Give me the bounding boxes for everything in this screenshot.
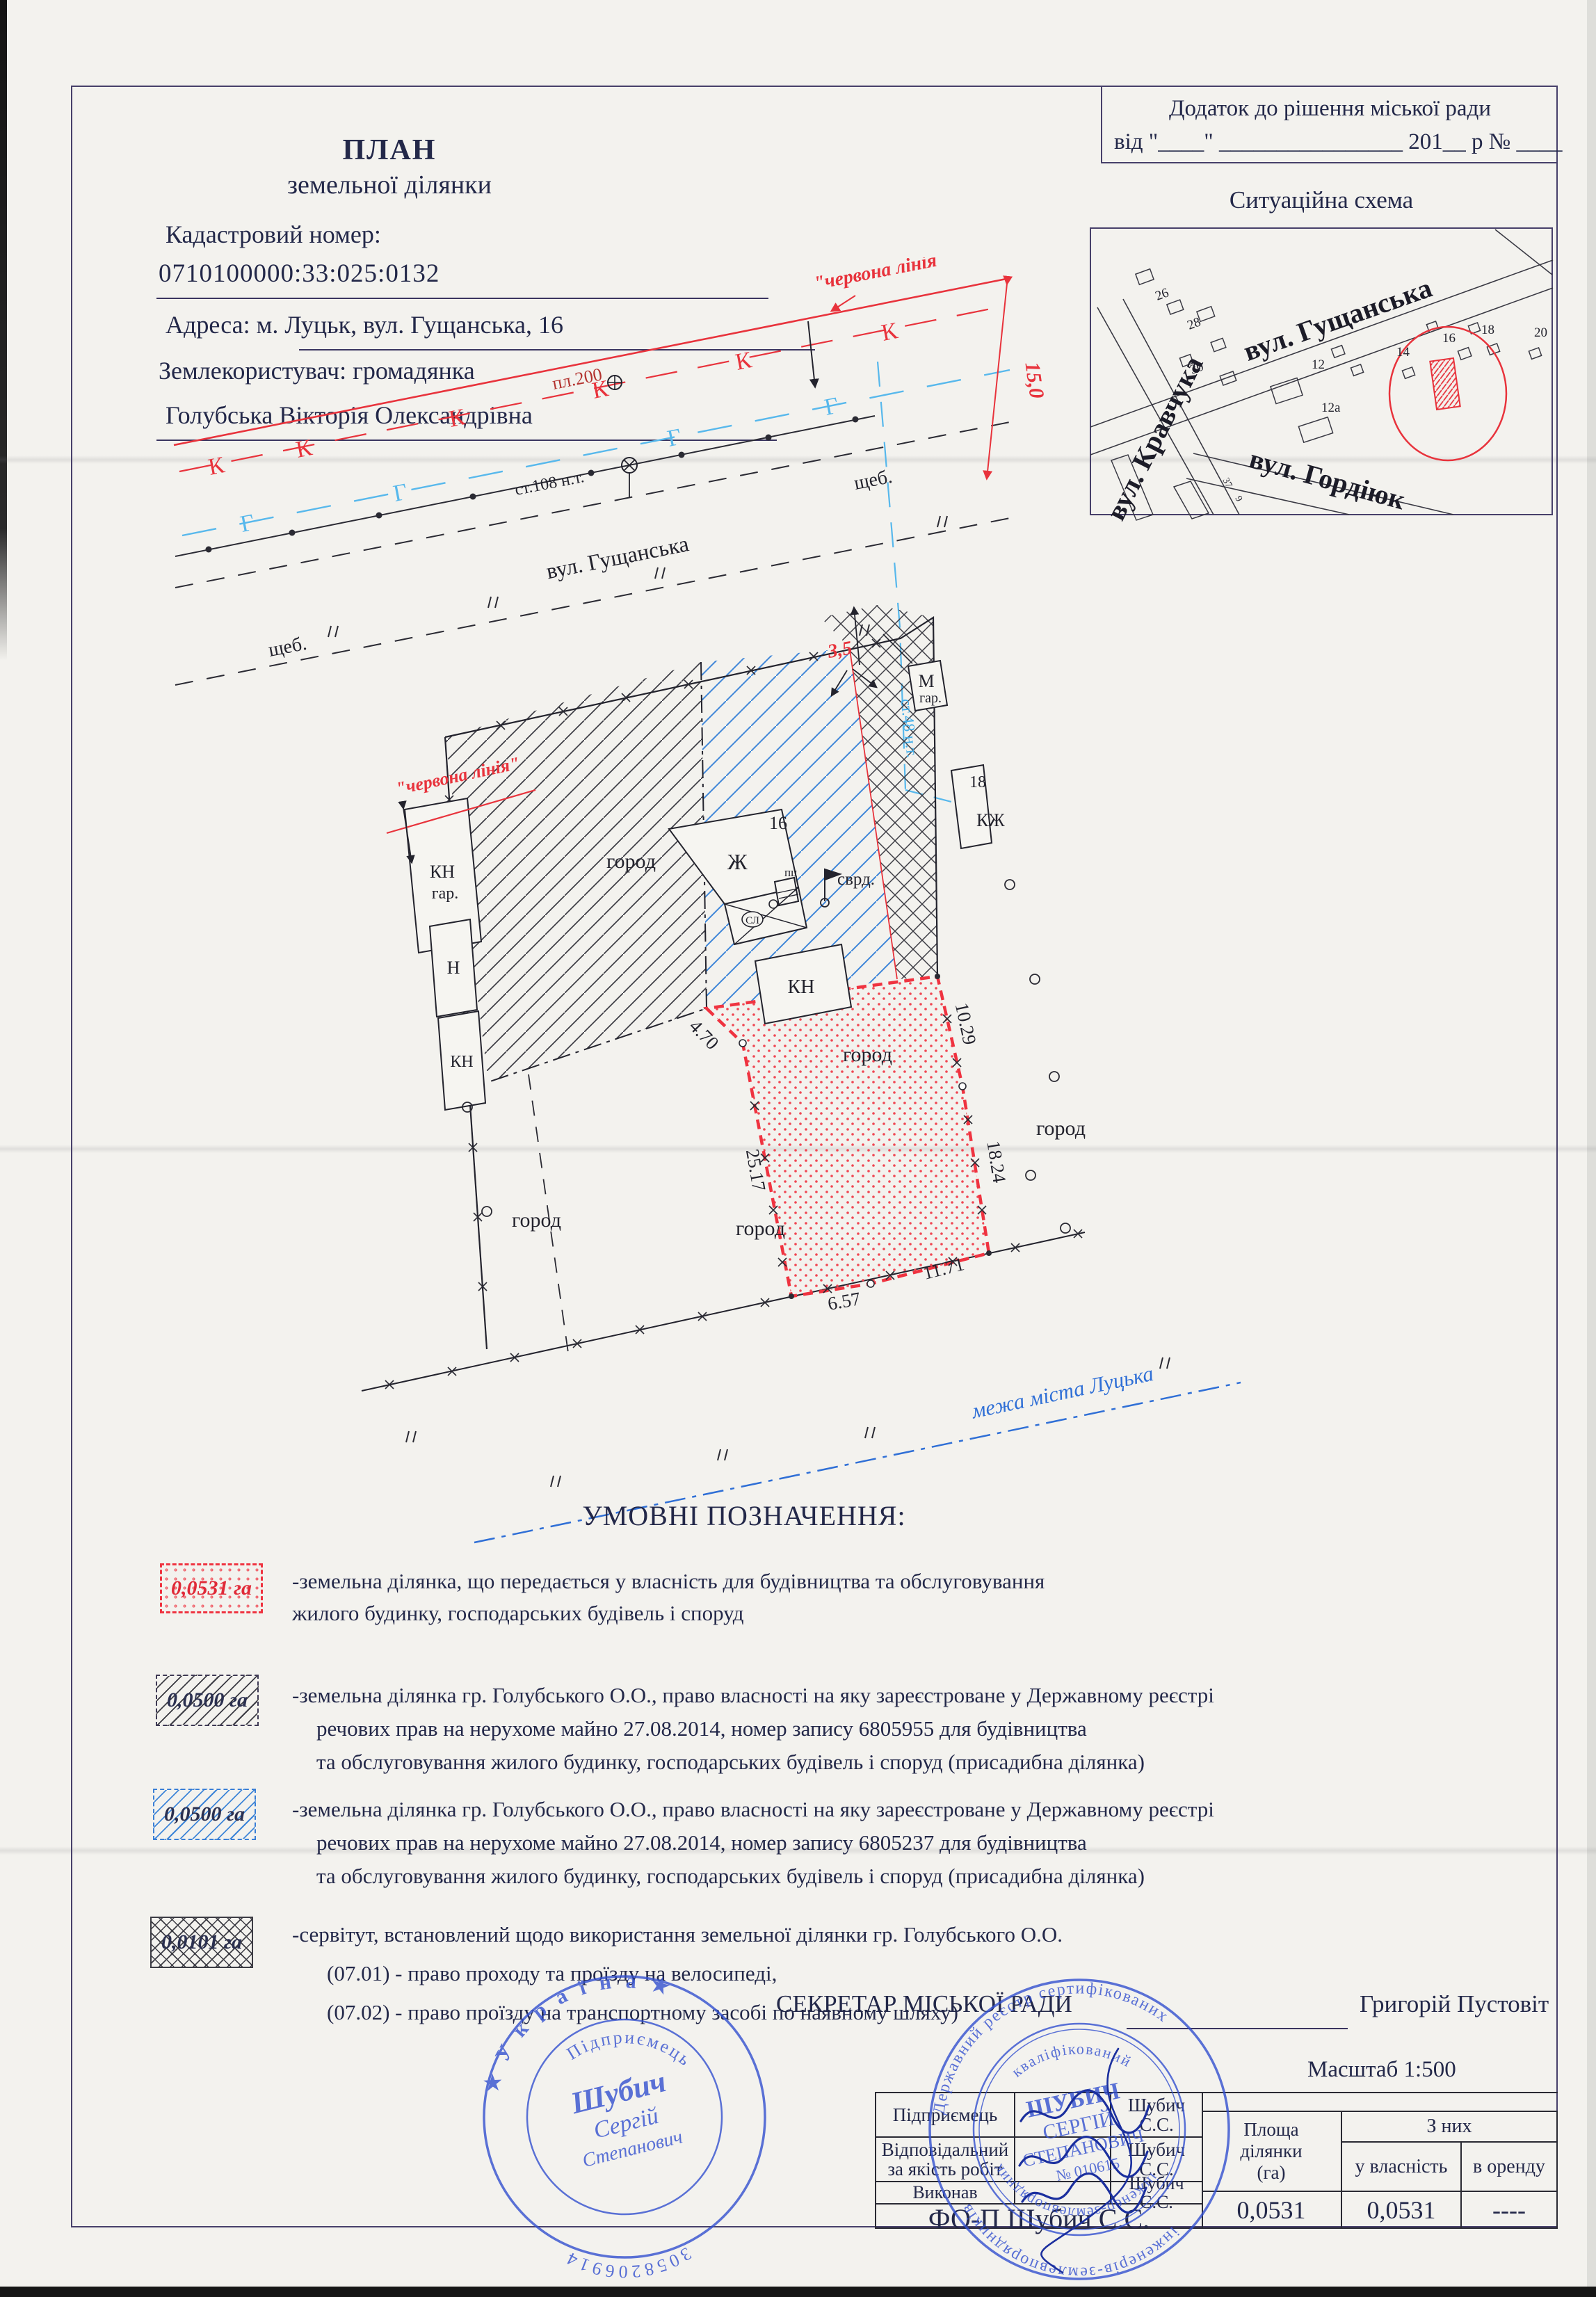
legend-area-3: 0,0101 га bbox=[161, 1931, 242, 1954]
legend-text: -земельна ділянка гр. Голубського О.О., … bbox=[292, 1683, 1214, 1708]
dim-4-70: 4.70 bbox=[685, 1015, 723, 1054]
red-line bbox=[174, 278, 1010, 445]
values-row: 0,0531 ---- bbox=[1342, 2192, 1556, 2227]
svg-text:18: 18 bbox=[1481, 323, 1494, 337]
leader-arrow bbox=[808, 321, 815, 387]
doc-subtitle: земельної ділянки bbox=[209, 170, 570, 200]
svg-text:КН: КН bbox=[450, 1053, 473, 1071]
svg-text:16: 16 bbox=[1442, 331, 1456, 346]
svg-text:14: 14 bbox=[1396, 345, 1410, 360]
round-stamp-entrepreneur: ★ У к р а ї н а ★ Підприємець 3058206914… bbox=[479, 1969, 765, 2282]
svg-text:Г: Г bbox=[238, 510, 256, 538]
svg-text:Г: Г bbox=[391, 479, 409, 507]
scheme-title: Ситуаційна схема bbox=[1106, 186, 1537, 214]
scale-label: Масштаб 1:500 bbox=[1307, 2057, 1456, 2083]
rent-value: ---- bbox=[1462, 2192, 1556, 2227]
legend-area-0: 0,0531 га bbox=[171, 1577, 252, 1600]
svg-text:Г: Г bbox=[665, 424, 683, 452]
svg-text:город: город bbox=[1036, 1117, 1086, 1140]
svg-text:К: К bbox=[879, 318, 900, 346]
red-line-label: "червона лінія" bbox=[812, 257, 949, 294]
svg-text:12: 12 bbox=[1312, 357, 1325, 372]
legend-swatch-transferred: 0,0531 га bbox=[160, 1563, 263, 1613]
round-stamp-engineer: Державний реєстр сертифікованих інженері… bbox=[930, 1979, 1229, 2282]
building-pc bbox=[775, 878, 798, 905]
dim-18-24: 18.24 bbox=[983, 1139, 1010, 1184]
borehole-label: сврд. bbox=[837, 870, 875, 889]
scanned-land-plan-document: ПЛАН земельної ділянки Кадастровий номер… bbox=[0, 0, 1596, 2297]
sewer-K-marks: К К К К К К bbox=[206, 318, 900, 481]
scan-edge-bottom bbox=[0, 2287, 1596, 2297]
svg-text:кваліфікований: кваліфікований bbox=[1008, 2040, 1135, 2080]
of-them-columns: З них у власність в оренду 0,0531 ---- bbox=[1342, 2112, 1556, 2227]
svg-text:пц: пц bbox=[784, 866, 797, 879]
legend-text: та обслуговування жилого будинку, господ… bbox=[316, 1864, 1145, 1889]
legend-text: та обслуговування жилого будинку, господ… bbox=[316, 1750, 1145, 1775]
svg-text:18: 18 bbox=[969, 773, 986, 791]
manhole-icon bbox=[608, 376, 622, 389]
cadastral-label: Кадастровий номер: bbox=[166, 220, 381, 249]
svg-text:КН: КН bbox=[430, 862, 455, 882]
dim-15-label: 15,0 bbox=[1020, 360, 1048, 400]
dim-10-29: 10.29 bbox=[951, 1001, 981, 1047]
svg-text:Ж: Ж bbox=[727, 849, 748, 874]
transferred-parcel-0-0531 bbox=[707, 976, 989, 1296]
svg-text:К: К bbox=[293, 435, 314, 463]
legend-area-2: 0,0500 га bbox=[164, 1803, 245, 1826]
svg-text:город: город bbox=[843, 1043, 892, 1066]
svg-text:гар.: гар. bbox=[919, 691, 942, 706]
svg-text:КН: КН bbox=[788, 976, 815, 998]
doc-title: ПЛАН bbox=[209, 134, 570, 167]
svg-text:К: К bbox=[206, 452, 227, 481]
dim-35-label: 3,5 bbox=[825, 637, 854, 663]
svg-text:12а: 12а bbox=[1321, 401, 1341, 415]
legend-text: -сервітут, встановлений щодо використанн… bbox=[292, 1922, 1063, 1947]
group-header: З них bbox=[1342, 2112, 1556, 2143]
svg-text:гар.: гар. bbox=[432, 885, 459, 903]
secretary-name: Григорій Пустовіт bbox=[1360, 1990, 1549, 2018]
svg-text:К: К bbox=[446, 404, 467, 433]
legend-title: УМОВНІ ПОЗНАЧЕННЯ: bbox=[431, 1499, 1057, 1532]
legend-text: жилого будинку, господарських будівель і… bbox=[292, 1601, 744, 1626]
legend-text: речових прав на нерухоме майно 27.08.201… bbox=[316, 1716, 1087, 1741]
power-label: ст.108 н.т. bbox=[513, 468, 586, 499]
gravel-label: щеб. bbox=[266, 633, 308, 661]
svg-text:М: М bbox=[918, 671, 934, 691]
city-border-label: межа міста Луцька bbox=[969, 1361, 1156, 1424]
annex-line1: Додаток до рішення міської ради bbox=[1113, 96, 1547, 122]
svg-text:Г: Г bbox=[822, 393, 840, 421]
scheme-target-plot bbox=[1430, 358, 1460, 410]
svg-text:Н: Н bbox=[447, 958, 460, 978]
svg-text:КЖ: КЖ bbox=[976, 810, 1005, 830]
legend-swatch-6805955: 0,0500 га bbox=[156, 1675, 259, 1726]
legend-swatch-6805237: 0,0500 га bbox=[153, 1789, 256, 1840]
land-plot-plan-drawing: К К К К К К пл.200 Г Г Г Г bbox=[104, 257, 1287, 1579]
dim-15-line bbox=[987, 284, 1007, 478]
stamp2-arc-top: кваліфікований bbox=[1008, 2040, 1135, 2080]
legend-text: -земельна ділянка, що передається у влас… bbox=[292, 1569, 1045, 1594]
svg-text:город: город bbox=[736, 1217, 785, 1240]
red-line-leader bbox=[832, 296, 855, 311]
street-name-label: вул. Гущанська bbox=[544, 531, 691, 583]
stamps-overlay: ★ У к р а ї н а ★ Підприємець 3058206914… bbox=[438, 1961, 1321, 2297]
svg-text:К: К bbox=[733, 347, 754, 376]
legend-text: -земельна ділянка гр. Голубського О.О., … bbox=[292, 1797, 1214, 1822]
rent-header: в оренду bbox=[1462, 2143, 1556, 2191]
legend-swatch-servitude: 0,0101 га bbox=[150, 1917, 253, 1968]
legend-area-1: 0,0500 га bbox=[167, 1689, 248, 1712]
svg-text:город: город bbox=[606, 850, 656, 873]
own-value: 0,0531 bbox=[1342, 2192, 1462, 2227]
svg-text:16: 16 bbox=[769, 813, 787, 833]
legend-text: речових прав на нерухоме майно 27.08.201… bbox=[316, 1830, 1087, 1855]
svg-text:20: 20 bbox=[1534, 325, 1547, 340]
svg-text:СЛ: СЛ bbox=[745, 915, 759, 926]
annex-line2: від "____" ________________ 201__ р № __… bbox=[1114, 129, 1552, 155]
own-header: у власність bbox=[1342, 2143, 1462, 2191]
sub-headers: у власність в оренду bbox=[1342, 2143, 1556, 2192]
scan-edge-left bbox=[0, 0, 7, 661]
svg-text:город: город bbox=[512, 1209, 561, 1232]
plot-6805955-hatch-area bbox=[445, 662, 707, 1082]
